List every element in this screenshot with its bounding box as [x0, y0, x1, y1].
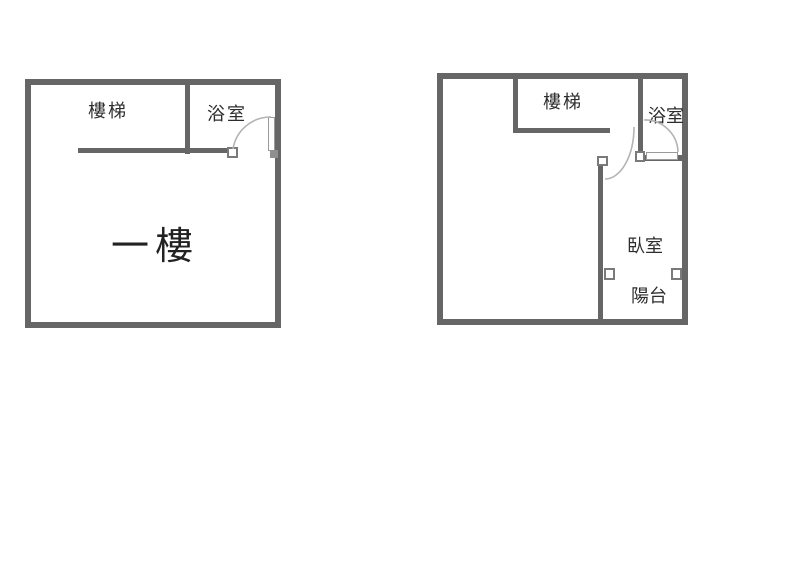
floor2-bedroom-label: 臥室	[627, 238, 663, 256]
floor1-stairs-bottom-wall	[78, 148, 233, 153]
floor2-bathroom-door-hinge-marker	[635, 151, 645, 162]
floor1-bathroom-label: 浴室	[207, 106, 247, 124]
floor1-doorframe-marker	[227, 147, 238, 158]
floor1-divider-wall	[185, 85, 190, 154]
floor1-title: 一樓	[111, 227, 199, 265]
floor2-bathroom-left-wall	[638, 79, 643, 153]
floor2-stairs-left-wall	[513, 79, 518, 133]
floor1-door-leaf	[268, 117, 275, 151]
floor2-stairs-bottom-wall	[513, 128, 610, 133]
floor2-balcony-window-marker-right	[671, 268, 682, 280]
floor2-bathroom-door-leaf	[646, 152, 678, 160]
floor2-bedroom-wall	[598, 158, 603, 319]
floor-plan-canvas: 樓梯 浴室 一樓 樓梯 浴室 臥室 陽台	[0, 0, 800, 577]
floor1-stairs-label: 樓梯	[88, 103, 128, 121]
floor2-stairs-label: 樓梯	[543, 94, 583, 112]
floor2-bathroom-label: 浴室	[648, 108, 684, 126]
floor2-bedroom-door-hinge-marker	[597, 156, 608, 166]
floor2-balcony-window-marker-left	[604, 268, 615, 280]
floor1-door-hinge-marker	[270, 150, 278, 158]
floor2-balcony-label: 陽台	[631, 288, 667, 306]
